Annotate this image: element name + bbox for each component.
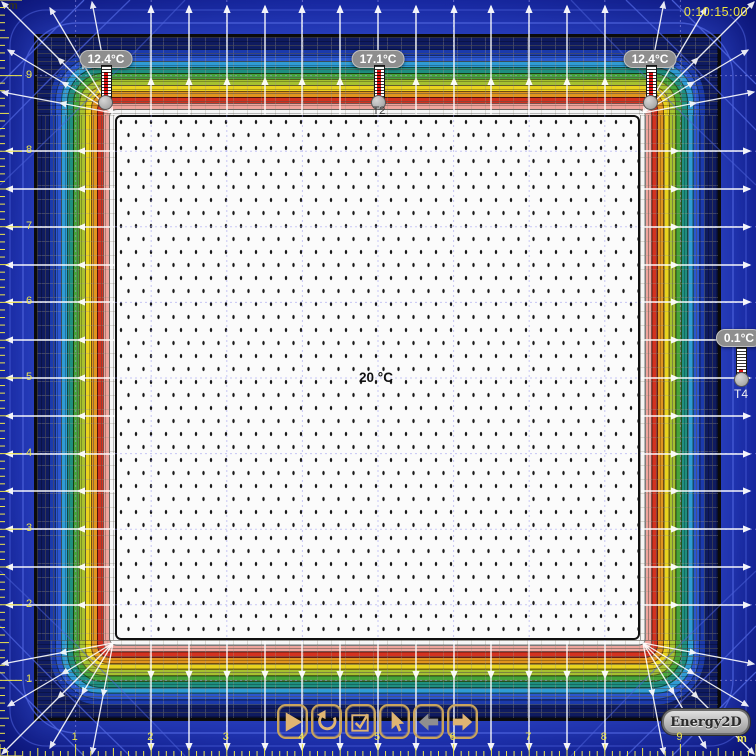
- ruler-label: 8: [601, 731, 607, 743]
- thermometer-t4-tag: T4: [734, 387, 748, 401]
- checkbox-icon: [347, 708, 374, 736]
- thermometer-t1[interactable]: [101, 65, 112, 99]
- reset-icon: [313, 708, 340, 736]
- thermometer-t4[interactable]: [736, 347, 747, 375]
- select-button[interactable]: [379, 704, 410, 739]
- ruler-label: 3: [26, 522, 32, 534]
- energy2d-logo: Energy2D: [662, 709, 750, 735]
- thermometer-t2[interactable]: [374, 65, 385, 99]
- ruler-label: 4: [26, 447, 32, 459]
- ruler-label: 1: [72, 731, 78, 743]
- ruler-label: 6: [450, 731, 456, 743]
- ruler-unit-label-bottom: m: [737, 733, 747, 745]
- thermometer-t4-reading: 0.1°C: [716, 329, 756, 347]
- thermometer-t3[interactable]: [646, 65, 657, 99]
- interior-temperature-label: 20 °C: [334, 370, 418, 385]
- thermometer-t1-bulb[interactable]: [98, 95, 113, 110]
- previous-button[interactable]: [413, 704, 444, 739]
- cursor-icon: [381, 708, 408, 736]
- ruler-label: 9: [26, 69, 32, 81]
- ruler-unit-label-top: m: [8, 0, 18, 12]
- ruler-label: 9: [676, 731, 682, 743]
- ruler-label: 7: [525, 731, 531, 743]
- ruler-label: 4: [298, 731, 304, 743]
- mercury-column: [377, 70, 381, 98]
- ruler-label: 8: [26, 144, 32, 156]
- ruler-label: 2: [147, 731, 153, 743]
- ruler-label: 2: [26, 598, 32, 610]
- ruler-label: 5: [26, 371, 32, 383]
- ruler-label: 1: [26, 673, 32, 685]
- ruler-label: 3: [223, 731, 229, 743]
- ruler-label: 7: [26, 220, 32, 232]
- arrow-left-icon: [415, 708, 442, 736]
- thermometer-t3-bulb[interactable]: [643, 95, 658, 110]
- ruler-label: 5: [374, 731, 380, 743]
- thermometer-t4-bulb[interactable]: [734, 372, 749, 387]
- reset-button[interactable]: [311, 704, 342, 739]
- time-display: 0:10:15:00: [684, 5, 748, 19]
- graph-button[interactable]: [345, 704, 376, 739]
- simulation-canvas[interactable]: 0:10:15:00 20 °C m m 12.4°C 17.1°C T2 12…: [0, 0, 756, 756]
- ruler-label: 6: [26, 295, 32, 307]
- thermometer-t2-tag: T2: [373, 105, 386, 117]
